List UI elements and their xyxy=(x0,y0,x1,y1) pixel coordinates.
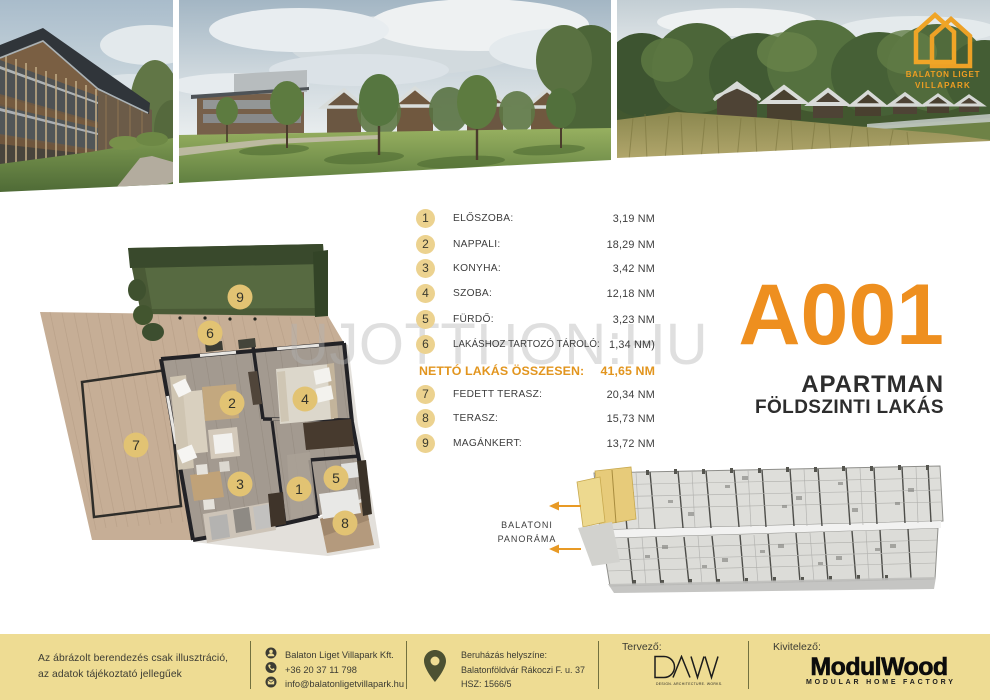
svg-text:BALATON LIGET: BALATON LIGET xyxy=(906,70,981,79)
svg-text:4: 4 xyxy=(301,391,309,407)
svg-text:6: 6 xyxy=(206,325,214,341)
svg-text:1: 1 xyxy=(295,481,303,497)
svg-text:3: 3 xyxy=(236,476,244,492)
svg-text:8: 8 xyxy=(341,515,349,531)
svg-text:9: 9 xyxy=(236,289,244,305)
svg-text:DESIGN. ARCHITECTURE. WORKS.: DESIGN. ARCHITECTURE. WORKS. xyxy=(656,682,723,686)
svg-text:2: 2 xyxy=(228,395,236,411)
svg-text:VILLAPARK: VILLAPARK xyxy=(915,81,971,90)
svg-text:7: 7 xyxy=(132,437,140,453)
svg-text:5: 5 xyxy=(332,470,340,486)
